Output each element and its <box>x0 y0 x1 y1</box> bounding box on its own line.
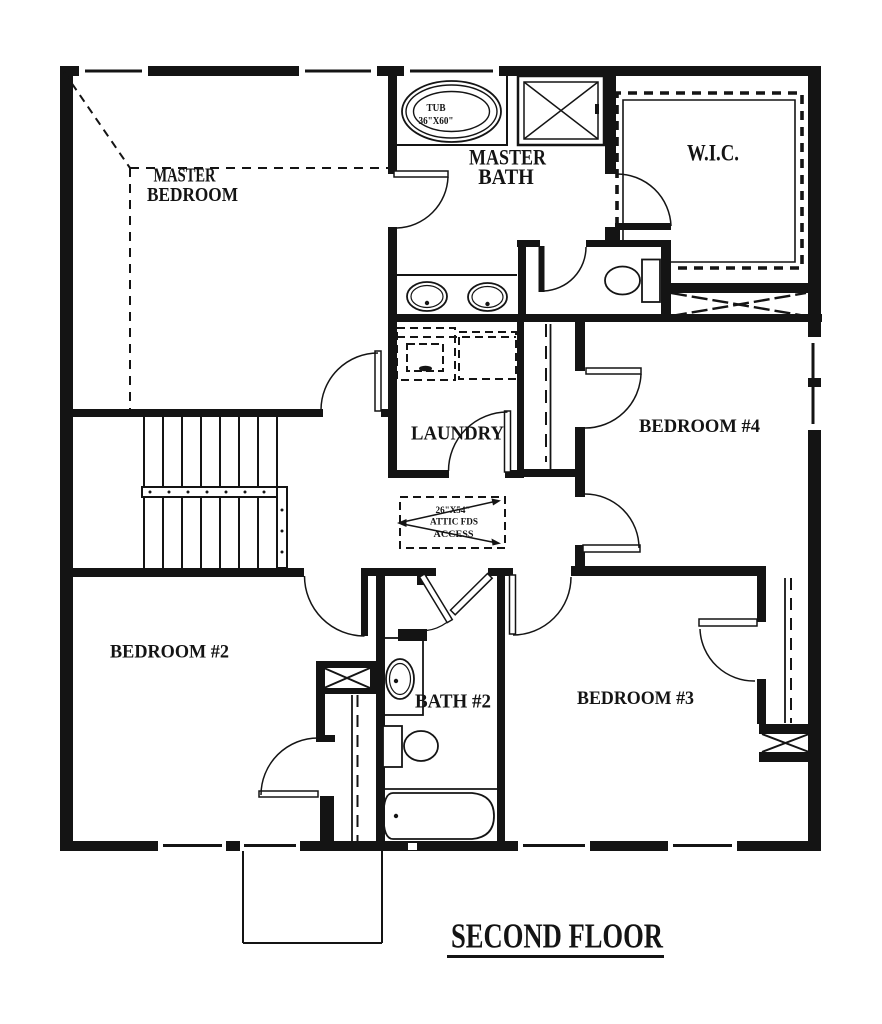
svg-text:TUB: TUB <box>427 102 447 114</box>
svg-text:26"X54": 26"X54" <box>436 506 471 516</box>
svg-text:BATH: BATH <box>478 164 534 189</box>
svg-text:36"X60": 36"X60" <box>419 116 454 127</box>
svg-text:ATTIC FDS: ATTIC FDS <box>430 518 478 528</box>
svg-text:BEDROOM: BEDROOM <box>147 184 238 206</box>
svg-text:BATH #2: BATH #2 <box>415 691 491 713</box>
svg-text:LAUNDRY: LAUNDRY <box>411 423 505 445</box>
svg-text:ACCESS: ACCESS <box>434 530 474 540</box>
svg-text:BEDROOM #4: BEDROOM #4 <box>639 416 760 437</box>
svg-text:BEDROOM #3: BEDROOM #3 <box>577 688 694 709</box>
svg-text:W.I.C.: W.I.C. <box>687 141 739 166</box>
svg-text:SECOND FLOOR: SECOND FLOOR <box>451 917 664 956</box>
svg-text:BEDROOM #2: BEDROOM #2 <box>110 642 229 663</box>
